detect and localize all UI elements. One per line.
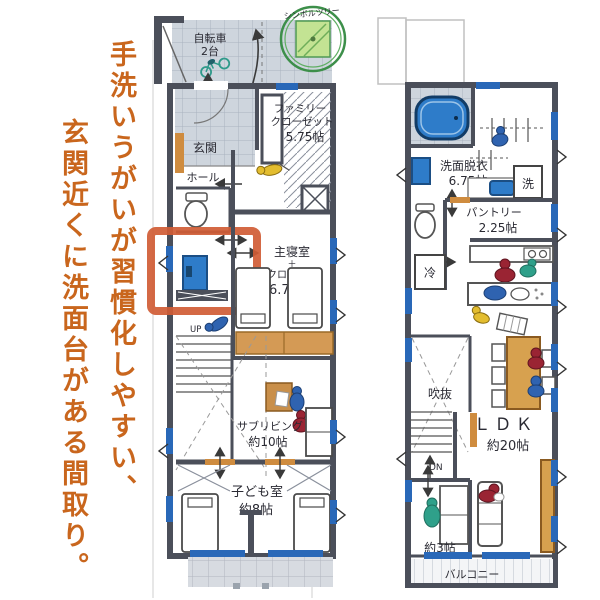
- caption-line-1: 手洗いうがいが習慣化しやすい、: [101, 40, 140, 505]
- down-label: DN: [429, 463, 443, 473]
- person-figure: [484, 286, 506, 300]
- sink: [511, 288, 529, 300]
- wall-stub: [154, 16, 184, 23]
- toilet-icon: [415, 204, 435, 238]
- up-label: UP: [190, 325, 201, 335]
- ldk-area: 約20帖: [487, 439, 530, 454]
- balcony-label: バルコニー: [445, 568, 500, 581]
- wall-stub: [154, 16, 162, 84]
- laundry-label: 洗: [522, 177, 534, 191]
- lower-floor-outline: [378, 18, 406, 84]
- person-figure: [290, 387, 304, 412]
- lower-floor-outline: [406, 20, 464, 84]
- family-closet-label: クローゼット: [271, 116, 334, 128]
- void-label: 吹抜: [428, 387, 452, 401]
- window: [190, 550, 245, 557]
- floor1-plan: シンボルツリー 自転車 2台 玄関 ファミリー クローゼット 5.75帖: [151, 6, 345, 598]
- family-closet-area: 5.75帖: [286, 129, 325, 144]
- window: [424, 552, 472, 559]
- family-closet-label: ファミリー: [274, 103, 327, 115]
- sub-living-area: 約10帖: [248, 434, 287, 449]
- floor2-plan: 洗面脱衣 6.75帖 洗 パントリー 2.25帖: [378, 18, 566, 585]
- pantry-label: パントリー: [466, 206, 522, 219]
- washbasin-icon: [490, 181, 514, 195]
- caption-line-2: 玄関近くに洗面台がある間取り。: [53, 118, 92, 583]
- cabinet: [412, 158, 430, 184]
- bicycle-label: 自転車: [194, 31, 227, 45]
- window: [268, 550, 323, 557]
- fridge-label: 冷: [424, 266, 436, 280]
- entrance-label: 玄関: [193, 140, 217, 155]
- kids-room-label: 子ども室: [231, 484, 283, 500]
- hall-label: ホール: [187, 171, 220, 184]
- window: [482, 552, 530, 559]
- sub-living-label: サブリビング: [237, 419, 303, 433]
- bicycle-count: 2台: [201, 44, 219, 58]
- bed: [288, 268, 322, 328]
- door-header: [450, 197, 470, 203]
- pantry-area: 2.25帖: [479, 220, 518, 235]
- ldk-label: ＬＤＫ: [474, 415, 537, 435]
- bed: [294, 494, 330, 552]
- window: [276, 83, 298, 90]
- terrace-tiles: [188, 557, 333, 587]
- bed: [236, 268, 270, 328]
- accent-wall: [175, 133, 184, 173]
- bathtub-icon: [416, 97, 468, 139]
- bed: [182, 494, 218, 552]
- toilet-icon: [185, 193, 207, 227]
- stove-icon: [524, 248, 550, 260]
- washroom-label: 洗面脱衣: [440, 158, 488, 173]
- master-bedroom-label: 主寝室: [274, 244, 310, 259]
